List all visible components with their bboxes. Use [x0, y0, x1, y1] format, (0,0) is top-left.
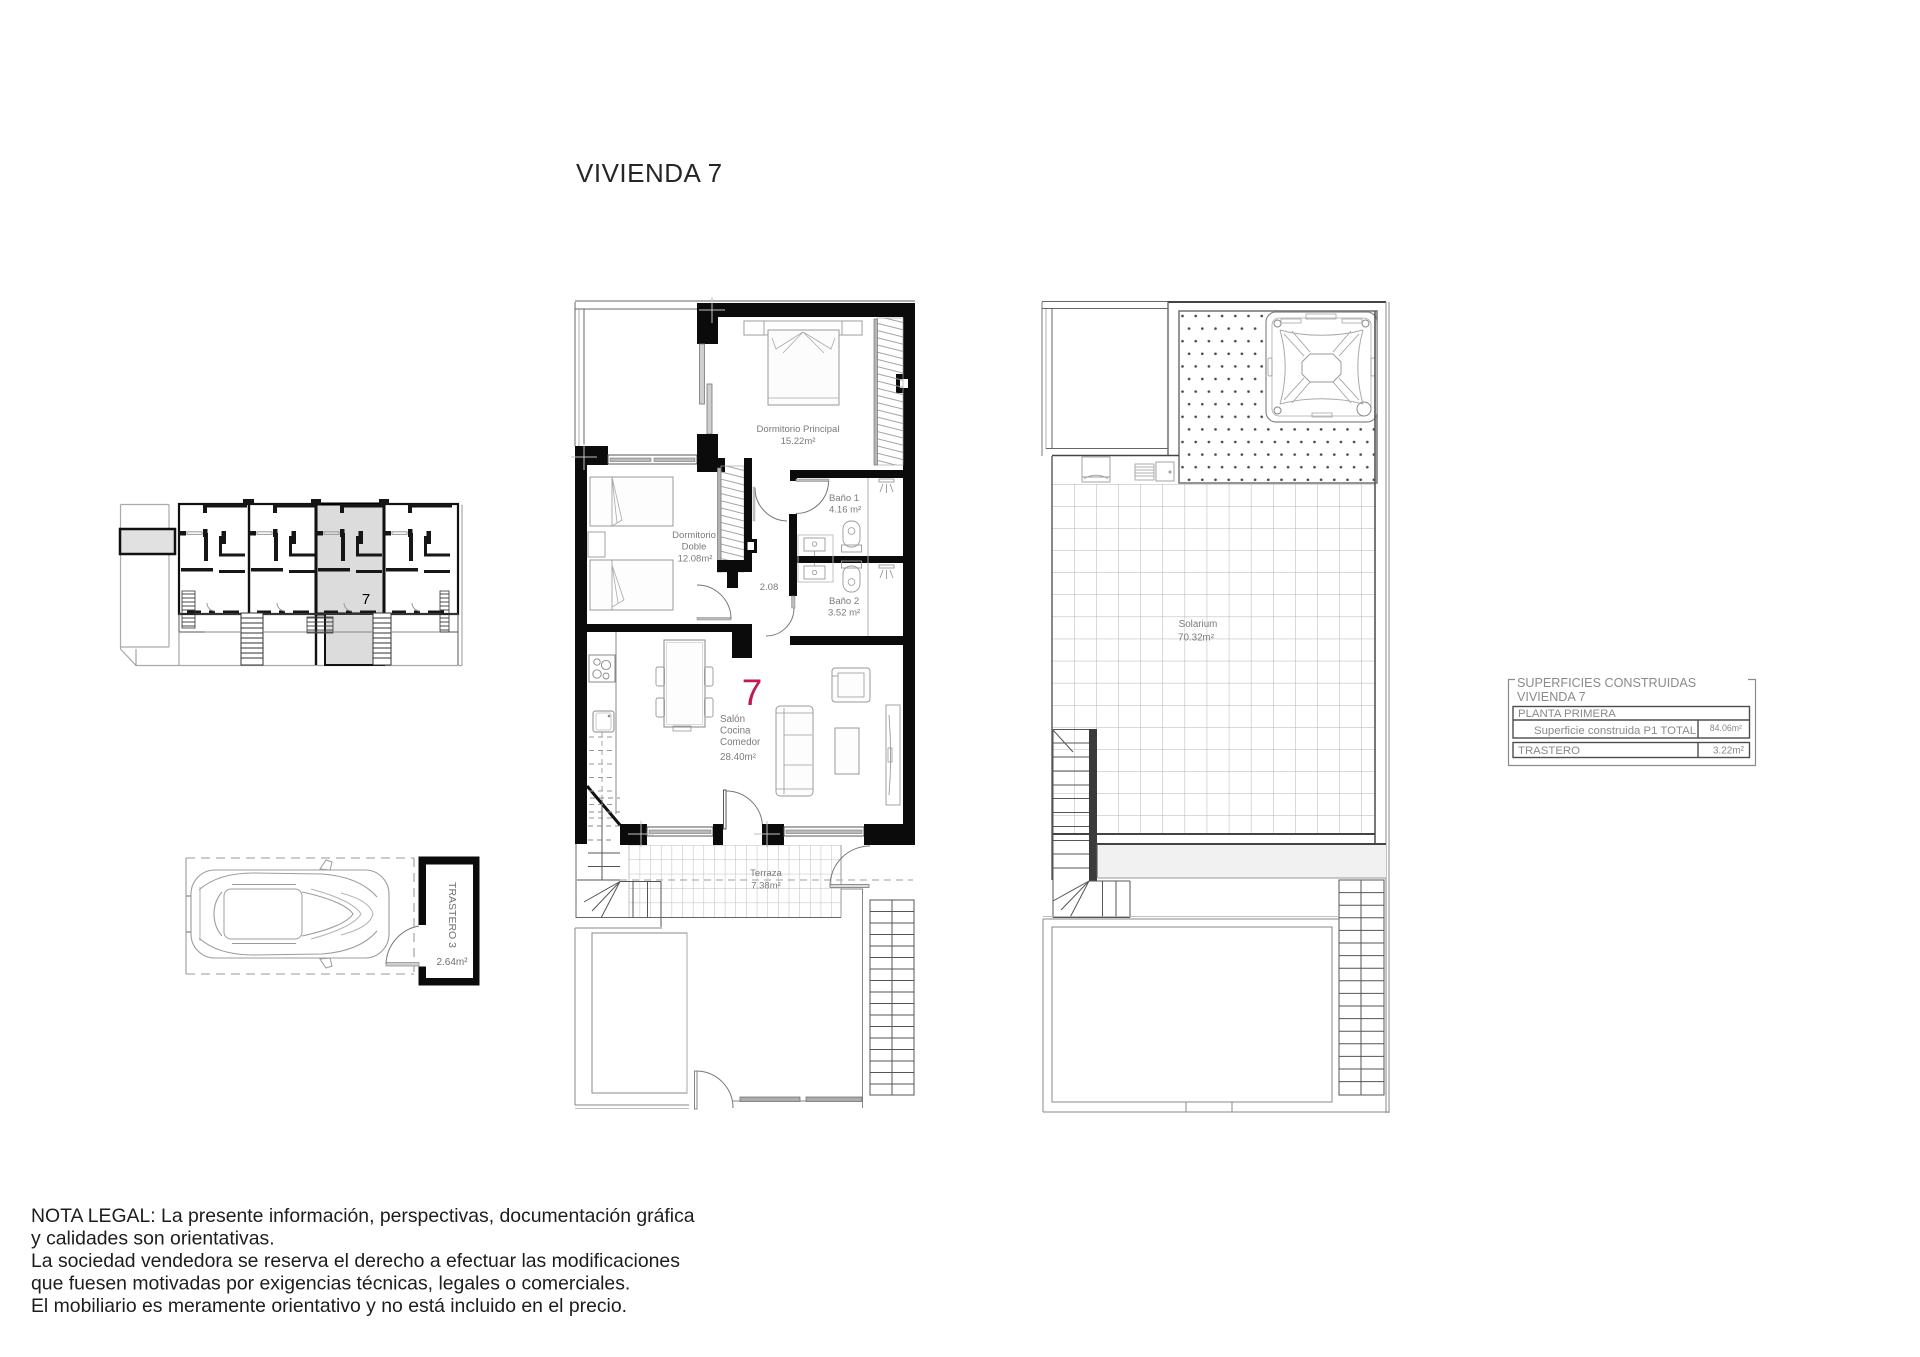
svg-text:12.08m²: 12.08m² [678, 554, 713, 565]
svg-text:28.40m²: 28.40m² [720, 752, 757, 763]
svg-text:15.22m²: 15.22m² [781, 436, 816, 447]
svg-text:La sociedad vendedora se reser: La sociedad vendedora se reserva el dere… [31, 1250, 680, 1272]
svg-text:Solarium: Solarium [1179, 619, 1218, 630]
svg-text:Terraza: Terraza [750, 868, 782, 879]
svg-text:SUPERFICIES CONSTRUIDAS: SUPERFICIES CONSTRUIDAS [1517, 676, 1696, 690]
svg-text:84.06m²: 84.06m² [1710, 723, 1742, 733]
svg-text:Dormitorio Principal: Dormitorio Principal [757, 424, 840, 435]
svg-text:VIVIENDA 7: VIVIENDA 7 [576, 158, 723, 188]
svg-text:7: 7 [362, 591, 370, 608]
svg-text:7: 7 [742, 672, 763, 713]
svg-text:70.32m²: 70.32m² [1178, 633, 1215, 644]
svg-text:3.22m²: 3.22m² [1713, 746, 1745, 757]
svg-text:Baño 1: Baño 1 [829, 493, 859, 504]
svg-text:PLANTA PRIMERA: PLANTA PRIMERA [1518, 708, 1616, 720]
svg-text:que fuesen motivadas por exige: que fuesen motivadas por exigencias técn… [31, 1273, 630, 1295]
svg-text:El mobiliario es meramente ori: El mobiliario es meramente orientativo y… [31, 1295, 627, 1317]
svg-text:2.08: 2.08 [760, 582, 779, 593]
svg-text:y calidades son orientativas.: y calidades son orientativas. [31, 1228, 275, 1250]
svg-text:Superficie construida P1 TOTAL: Superficie construida P1 TOTAL [1534, 725, 1696, 737]
svg-text:Baño 2: Baño 2 [829, 596, 859, 607]
svg-text:7.38m²: 7.38m² [751, 881, 781, 892]
svg-text:TRASTERO 3: TRASTERO 3 [446, 882, 458, 948]
svg-text:Comedor: Comedor [720, 737, 761, 748]
svg-text:Dormitorio: Dormitorio [672, 530, 716, 541]
svg-text:TRASTERO: TRASTERO [1518, 745, 1580, 757]
svg-text:4.16 m²: 4.16 m² [829, 505, 861, 516]
svg-text:3.52 m²: 3.52 m² [828, 608, 860, 619]
svg-text:NOTA LEGAL: La presente inform: NOTA LEGAL: La presente información, per… [31, 1205, 695, 1227]
svg-text:VIVIENDA 7: VIVIENDA 7 [1517, 690, 1586, 704]
svg-text:2.64m²: 2.64m² [436, 957, 468, 968]
svg-text:Cocina: Cocina [720, 726, 751, 737]
svg-text:Doble: Doble [682, 542, 707, 553]
svg-text:Salón: Salón [720, 714, 745, 725]
